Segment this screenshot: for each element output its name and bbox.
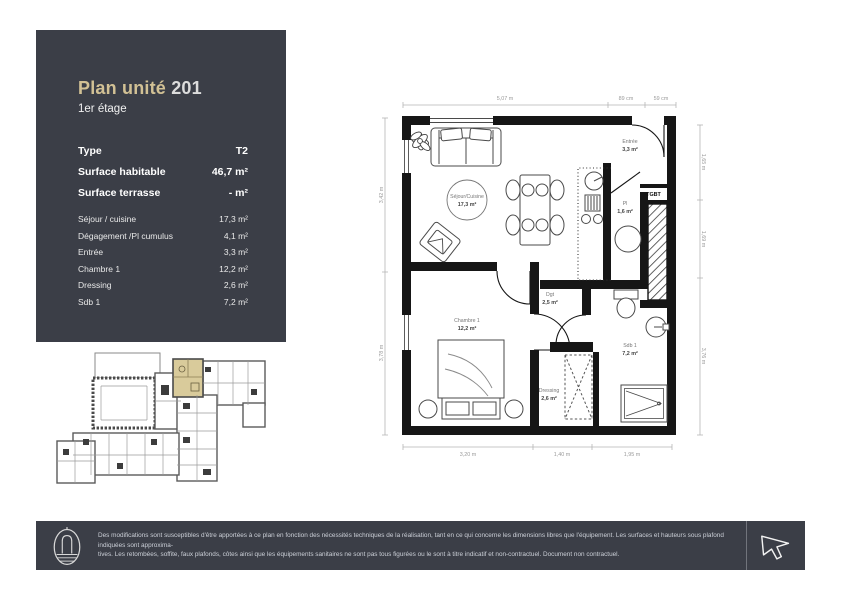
toilet bbox=[614, 290, 638, 318]
room-value: 12,2 m² bbox=[219, 261, 248, 278]
footer-bar: Des modifications sont susceptibles d'êt… bbox=[36, 521, 805, 570]
sofa bbox=[431, 128, 501, 166]
label-tgbt: TGBT bbox=[646, 192, 661, 198]
armchair bbox=[419, 221, 461, 263]
dim-right-2: 1,69 m bbox=[700, 231, 706, 248]
label-sdb-area: 7,2 m² bbox=[622, 351, 638, 357]
room-value: 7,2 m² bbox=[224, 294, 248, 311]
room-row: Séjour / cuisine 17,3 m² bbox=[78, 211, 248, 228]
info-panel: Plan unité 201 1er étage Type T2 Surface… bbox=[36, 30, 286, 342]
wardrobe bbox=[565, 355, 592, 419]
summary-label: Surface habitable bbox=[78, 162, 166, 183]
dining-table bbox=[506, 175, 564, 245]
room-row: Sdb 1 7,2 m² bbox=[78, 294, 248, 311]
summary-label: Surface terrasse bbox=[78, 183, 160, 204]
label-entree-area: 3,3 m² bbox=[622, 147, 638, 153]
dim-bottom-3: 1,95 m bbox=[624, 452, 641, 458]
label-pl-area: 1,6 m² bbox=[617, 209, 633, 215]
room-label: Dressing bbox=[78, 277, 112, 294]
page-title: Plan unité 201 bbox=[78, 78, 248, 99]
bed bbox=[419, 340, 523, 419]
room-value: 3,3 m² bbox=[224, 244, 248, 261]
room-row: Dressing 2,6 m² bbox=[78, 277, 248, 294]
next-page-button[interactable] bbox=[747, 530, 805, 562]
dim-top-1: 5,07 m bbox=[497, 96, 514, 102]
plant bbox=[409, 130, 431, 152]
room-value: 17,3 m² bbox=[219, 211, 248, 228]
title-main: Plan unité bbox=[78, 78, 166, 98]
cumulus bbox=[615, 226, 641, 252]
room-label: Séjour / cuisine bbox=[78, 211, 136, 228]
disclaimer-line-2: tives. Les retombées, soffite, faux plaf… bbox=[98, 551, 619, 558]
nightstand bbox=[419, 400, 437, 418]
room-surface-table: Séjour / cuisine 17,3 m² Dégagement /Pl … bbox=[78, 211, 248, 310]
highlighted-unit bbox=[173, 359, 203, 397]
nightstand bbox=[505, 400, 523, 418]
label-dgt-name: Dgt bbox=[546, 292, 555, 298]
label-dressing-area: 2,6 m² bbox=[541, 396, 557, 402]
floor-label: 1er étage bbox=[78, 103, 248, 115]
room-row: Entrée 3,3 m² bbox=[78, 244, 248, 261]
room-row: Dégagement /Pl cumulus 4,1 m² bbox=[78, 228, 248, 245]
brand-logo bbox=[36, 525, 98, 567]
disclaimer-line-1: Des modifications sont susceptibles d'êt… bbox=[98, 532, 724, 549]
dim-right-1: 1,65 m bbox=[700, 154, 706, 171]
summary-row: Surface habitable 46,7 m² bbox=[78, 162, 248, 183]
label-sdb-name: Sdb 1 bbox=[623, 343, 637, 349]
label-pl-name: Pl bbox=[623, 201, 628, 207]
room-label: Dégagement /Pl cumulus bbox=[78, 228, 173, 245]
cursor-arrow-icon bbox=[759, 530, 793, 562]
room-label: Chambre 1 bbox=[78, 261, 120, 278]
summary-value: 46,7 m² bbox=[212, 162, 248, 183]
summary-row: Type T2 bbox=[78, 141, 248, 162]
room-label: Sdb 1 bbox=[78, 294, 100, 311]
label-dressing-name: Dressing bbox=[539, 388, 560, 394]
washbasin bbox=[646, 317, 669, 337]
locator-plan bbox=[55, 345, 275, 485]
dim-left-1: 3,42 m bbox=[379, 186, 385, 203]
kitchen-hob bbox=[585, 195, 600, 211]
dim-left-2: 3,78 m bbox=[379, 344, 385, 361]
label-dgt-area: 2,5 m² bbox=[542, 300, 558, 306]
dim-bottom-1: 3,20 m bbox=[460, 452, 477, 458]
label-entree-name: Entrée bbox=[622, 139, 637, 145]
dim-top-3: 59 cm bbox=[654, 96, 669, 102]
title-number: 201 bbox=[171, 78, 202, 98]
room-label: Entrée bbox=[78, 244, 103, 261]
technical-shaft bbox=[648, 204, 667, 300]
summary-label: Type bbox=[78, 141, 102, 162]
room-value: 2,6 m² bbox=[224, 277, 248, 294]
room-row: Chambre 1 12,2 m² bbox=[78, 261, 248, 278]
room-value: 4,1 m² bbox=[224, 228, 248, 245]
label-sejour-name: Séjour/Cuisine bbox=[450, 194, 484, 200]
summary-value: - m² bbox=[229, 183, 248, 204]
summary-value: T2 bbox=[236, 141, 248, 162]
unit-floor-plan: 5,07 m 89 cm 59 cm 3,42 m 3,78 m 1,65 m … bbox=[378, 88, 718, 478]
dim-right-3: 3,76 m bbox=[700, 348, 706, 365]
label-chambre-name: Chambre 1 bbox=[454, 318, 480, 324]
summary-table: Type T2 Surface habitable 46,7 m² Surfac… bbox=[78, 141, 248, 204]
dim-bottom-2: 1,40 m bbox=[554, 452, 571, 458]
label-chambre-area: 12,2 m² bbox=[458, 326, 477, 332]
shower bbox=[621, 385, 667, 422]
disclaimer-text: Des modifications sont susceptibles d'êt… bbox=[98, 531, 746, 560]
summary-row: Surface terrasse - m² bbox=[78, 183, 248, 204]
label-sejour-area: 17,3 m² bbox=[458, 202, 477, 208]
building-logo-icon bbox=[50, 525, 84, 567]
dim-top-2: 89 cm bbox=[619, 96, 634, 102]
